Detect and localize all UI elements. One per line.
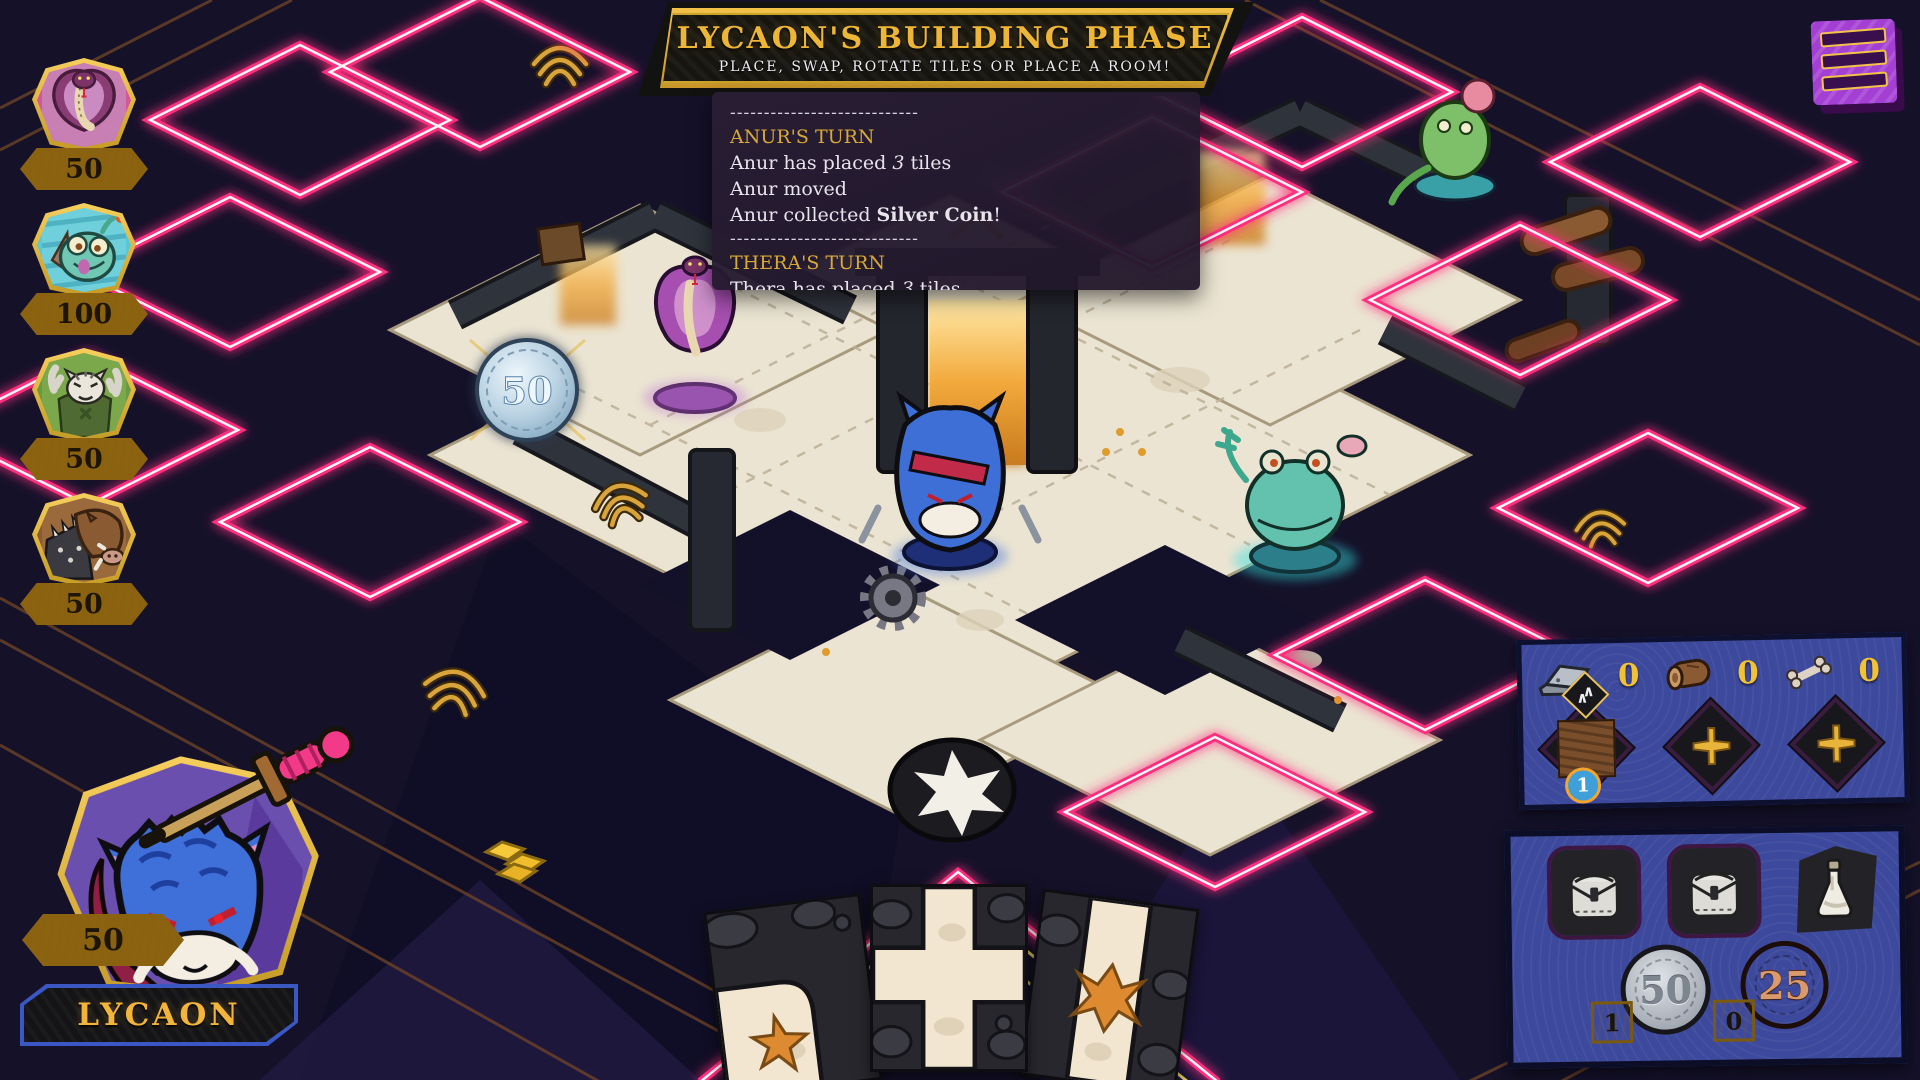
tile-stack-count-badge: 1 <box>1565 767 1602 804</box>
player-entry: 50 <box>16 493 152 625</box>
inventory-panel: 50 25 1 0 <box>1504 825 1907 1069</box>
current-player-name: LYCAON <box>77 997 240 1033</box>
player-score-banner: 50 <box>20 583 148 625</box>
bone-count: 0 <box>1858 652 1880 688</box>
phase-banner: LYCAON'S BUILDING PHASE PLACE, SWAP, ROT… <box>656 8 1234 88</box>
item-slot-flask[interactable] <box>1791 846 1878 933</box>
gate-pillar <box>1028 272 1076 472</box>
player-avatar-frame <box>32 493 136 587</box>
empty-tile-slot[interactable] <box>1665 699 1758 792</box>
player-score-banner: 50 <box>20 148 148 190</box>
tile-card-cross-path[interactable] <box>870 884 1028 1072</box>
log-line: Anur moved <box>730 176 1182 202</box>
player-score: 100 <box>56 299 112 330</box>
turn-log-panel: ---------------------------- ANUR'S TURN… <box>712 92 1200 290</box>
current-player-score-banner: 50 <box>22 914 184 966</box>
bone-icon <box>1782 654 1835 689</box>
boar-avatar <box>38 498 130 582</box>
coin-token-value: 50 <box>501 369 553 413</box>
player-score: 50 <box>65 154 103 185</box>
log-turn-header: ANUR'S TURN <box>730 124 1182 150</box>
crate <box>538 223 585 264</box>
wood-log-icon <box>1663 653 1714 696</box>
flask-icon <box>1806 856 1863 923</box>
spike-trap <box>890 740 1014 840</box>
iron-count: 0 <box>1618 658 1640 694</box>
axolotl-avatar <box>38 208 130 292</box>
current-player-name-plate: LYCAON <box>20 984 298 1046</box>
gold-cross-icon <box>1816 723 1857 764</box>
player-list: 50 100 <box>16 58 152 625</box>
tile-stack-slot[interactable]: ∧∧ 1 <box>1540 702 1633 795</box>
player-entry: 50 <box>16 348 152 480</box>
player-score: 50 <box>65 589 103 620</box>
tiger-avatar <box>38 353 130 437</box>
current-player-score: 50 <box>82 923 124 958</box>
tile-card-corner-path[interactable] <box>703 893 883 1080</box>
log-line: Thera has placed 3 tiles <box>730 276 1182 290</box>
item-slot-pouch[interactable] <box>1671 847 1758 934</box>
wood-count: 0 <box>1737 655 1759 691</box>
silver-coin-count-badge: 1 <box>1591 1001 1634 1044</box>
tile-card-straight-path[interactable] <box>1018 888 1199 1080</box>
log-line: Anur has placed 3 tiles <box>730 150 1182 176</box>
empty-tile-slot[interactable] <box>1790 697 1883 790</box>
pouch-icon <box>1683 859 1746 922</box>
resource-panel: 0 0 0 ∧∧ 1 <box>1516 632 1909 810</box>
player-score-banner: 50 <box>20 438 148 480</box>
silver-coin: 50 <box>1620 944 1711 1035</box>
pouch-icon <box>1563 861 1626 924</box>
phase-title: LYCAON'S BUILDING PHASE <box>677 21 1214 56</box>
player-entry: 100 <box>16 203 152 335</box>
player-entry: 50 <box>16 58 152 190</box>
cobra-avatar <box>38 63 130 147</box>
log-divider: ---------------------------- <box>730 102 1182 124</box>
gold-cross-icon <box>1691 726 1732 767</box>
game-screen: 50 LYCAON'S BUILDING PHASE PLACE, SWAP, … <box>0 0 1920 1080</box>
copper-coin-count-badge: 0 <box>1713 999 1756 1042</box>
phase-subtitle: PLACE, SWAP, ROTATE TILES OR PLACE A ROO… <box>719 59 1172 75</box>
player-avatar-frame <box>32 348 136 442</box>
coin-row: 50 25 1 0 <box>1512 935 1902 1060</box>
player-avatar-frame <box>32 58 136 152</box>
log-divider: ---------------------------- <box>730 228 1182 250</box>
player-avatar-frame <box>32 203 136 297</box>
player-score-banner: 100 <box>20 293 148 335</box>
item-slot-pouch[interactable] <box>1551 849 1638 936</box>
hamburger-menu-button[interactable] <box>1811 19 1898 106</box>
player-score: 50 <box>65 444 103 475</box>
log-turn-header: THERA'S TURN <box>730 250 1182 276</box>
hamburger-menu-icon <box>1820 27 1887 47</box>
log-line: Anur collected Silver Coin! <box>730 202 1182 228</box>
